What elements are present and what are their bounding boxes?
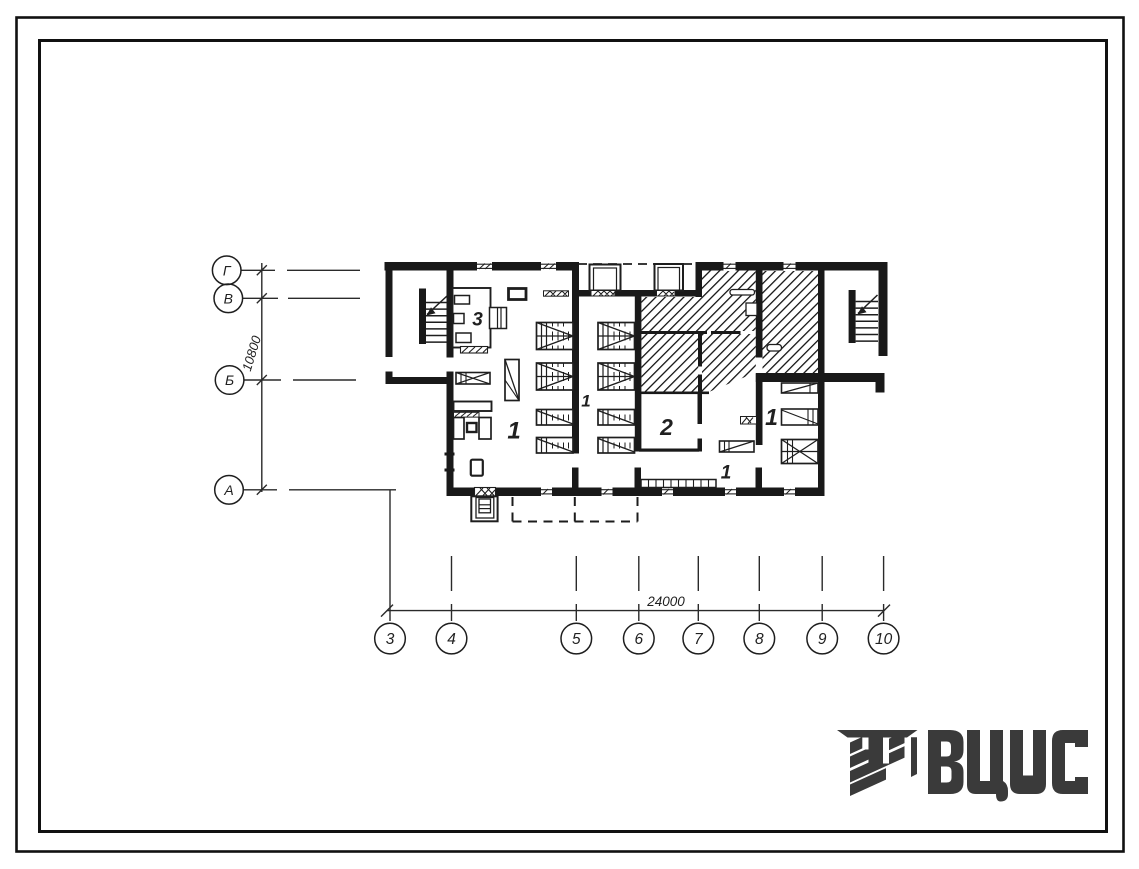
svg-text:Г: Г <box>223 262 232 278</box>
svg-text:7: 7 <box>694 631 704 648</box>
svg-text:24000: 24000 <box>646 594 685 609</box>
svg-text:1: 1 <box>581 392 590 411</box>
svg-text:4: 4 <box>447 631 456 648</box>
svg-text:5: 5 <box>572 631 581 648</box>
svg-text:8: 8 <box>755 631 764 648</box>
svg-text:1: 1 <box>765 404 778 430</box>
svg-text:В: В <box>224 290 233 306</box>
svg-text:9: 9 <box>818 631 827 648</box>
svg-text:А: А <box>223 482 233 498</box>
svg-text:2: 2 <box>659 414 673 440</box>
svg-text:Б: Б <box>225 372 234 388</box>
svg-text:3: 3 <box>472 310 483 331</box>
svg-text:1: 1 <box>507 418 520 445</box>
svg-text:6: 6 <box>634 631 643 648</box>
svg-text:1: 1 <box>721 463 732 484</box>
svg-text:10800: 10800 <box>239 333 264 373</box>
svg-text:10: 10 <box>875 631 893 648</box>
svg-text:3: 3 <box>386 631 395 648</box>
